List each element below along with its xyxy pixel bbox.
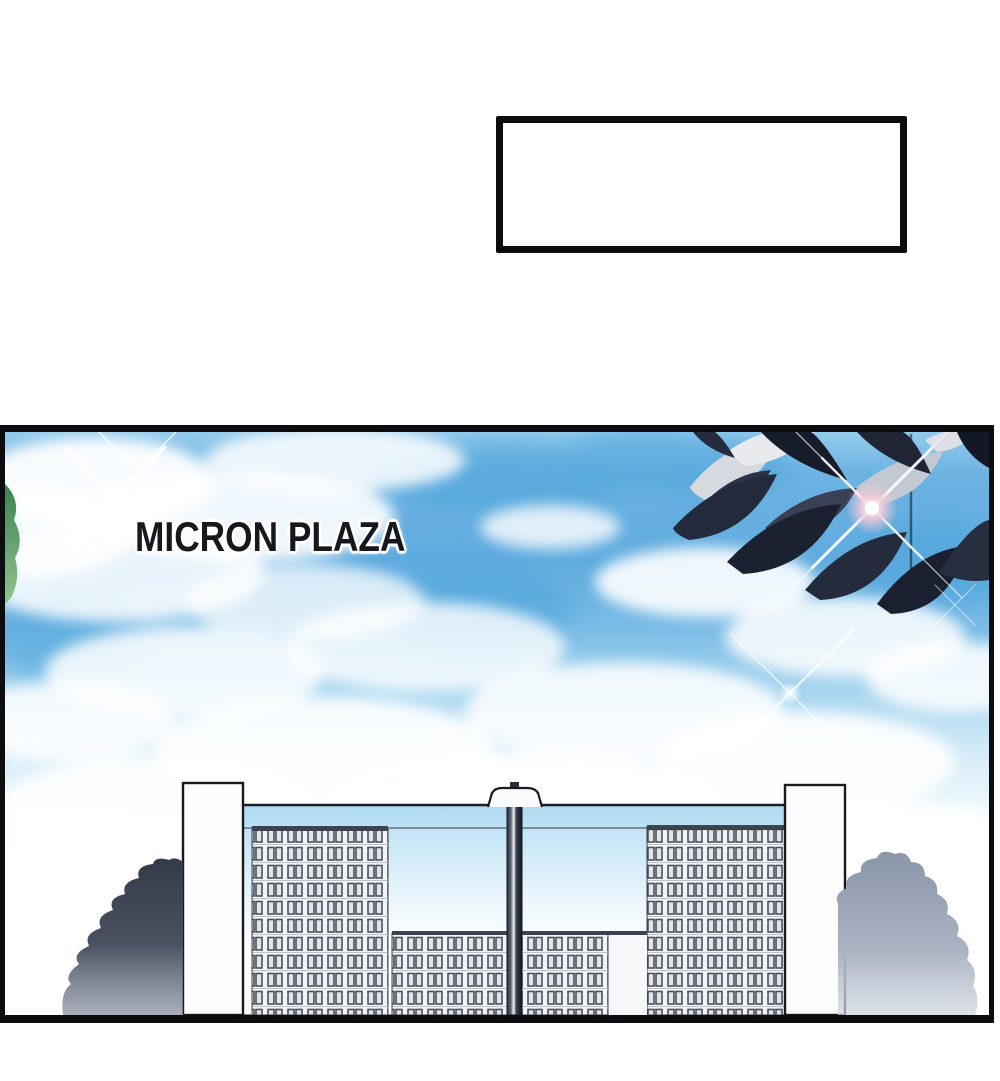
plaza-title: MICRON PLAZA: [135, 516, 405, 558]
pole-cap: [488, 788, 542, 807]
left-pillar: [183, 783, 243, 1015]
speech-box: [496, 116, 907, 253]
building: [183, 782, 845, 1015]
page: MICRON PLAZA: [0, 0, 1000, 1081]
right-pillar: [785, 785, 845, 1015]
right-tower: [647, 825, 785, 1015]
comic-panel: MICRON PLAZA: [0, 425, 994, 1023]
left-tower: [252, 826, 388, 1015]
